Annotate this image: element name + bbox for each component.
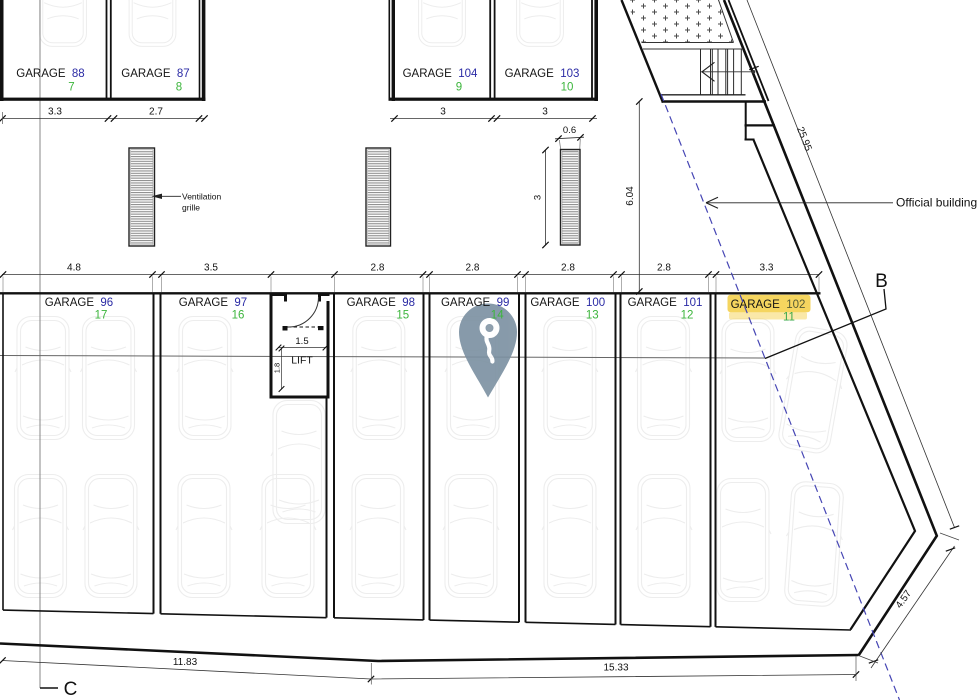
svg-text:1.5: 1.5 bbox=[295, 336, 308, 347]
svg-text:GARAGE 104: GARAGE 104 bbox=[403, 68, 478, 80]
svg-text:8: 8 bbox=[176, 82, 182, 94]
svg-text:11.83: 11.83 bbox=[173, 657, 198, 668]
svg-text:B: B bbox=[875, 271, 888, 292]
svg-text:17: 17 bbox=[95, 310, 108, 322]
svg-text:2.8: 2.8 bbox=[561, 263, 575, 274]
svg-text:C: C bbox=[64, 679, 78, 700]
svg-text:15: 15 bbox=[396, 310, 409, 322]
svg-text:Official building ali: Official building ali bbox=[896, 196, 978, 210]
svg-text:4.8: 4.8 bbox=[67, 263, 81, 274]
svg-text:GARAGE 97: GARAGE 97 bbox=[179, 297, 247, 309]
svg-text:16: 16 bbox=[232, 310, 245, 322]
svg-text:GARAGE 103: GARAGE 103 bbox=[505, 68, 580, 80]
svg-text:12: 12 bbox=[681, 310, 694, 322]
svg-text:13: 13 bbox=[586, 310, 599, 322]
svg-text:6.04: 6.04 bbox=[625, 186, 636, 206]
svg-text:GARAGE 96: GARAGE 96 bbox=[45, 297, 113, 309]
svg-text:2.7: 2.7 bbox=[149, 107, 163, 118]
svg-text:3: 3 bbox=[542, 107, 548, 118]
svg-text:GARAGE 98: GARAGE 98 bbox=[347, 297, 415, 309]
svg-text:Ventilation: Ventilation bbox=[182, 192, 221, 202]
svg-text:GARAGE 87: GARAGE 87 bbox=[121, 68, 189, 80]
svg-text:15.33: 15.33 bbox=[603, 663, 628, 674]
svg-text:14: 14 bbox=[491, 310, 504, 322]
svg-text:GARAGE 99: GARAGE 99 bbox=[441, 297, 509, 309]
svg-text:10: 10 bbox=[561, 82, 574, 94]
svg-text:2.8: 2.8 bbox=[371, 263, 385, 274]
svg-text:11: 11 bbox=[783, 312, 795, 324]
svg-text:3.5: 3.5 bbox=[204, 263, 218, 274]
svg-text:7: 7 bbox=[68, 82, 74, 94]
svg-text:GARAGE 100: GARAGE 100 bbox=[530, 297, 605, 309]
svg-text:1.8: 1.8 bbox=[273, 363, 282, 373]
svg-text:LIFT: LIFT bbox=[291, 355, 313, 367]
svg-text:9: 9 bbox=[456, 82, 462, 94]
svg-text:2.8: 2.8 bbox=[657, 263, 671, 274]
svg-text:3.3: 3.3 bbox=[760, 263, 774, 274]
svg-text:GARAGE 101: GARAGE 101 bbox=[628, 297, 703, 309]
svg-text:grille: grille bbox=[182, 203, 200, 213]
svg-text:3.3: 3.3 bbox=[48, 107, 62, 118]
svg-text:2.8: 2.8 bbox=[466, 263, 480, 274]
svg-text:0.6: 0.6 bbox=[563, 125, 576, 136]
svg-text:GARAGE 88: GARAGE 88 bbox=[16, 68, 84, 80]
svg-text:3: 3 bbox=[533, 195, 544, 200]
svg-text:3: 3 bbox=[440, 107, 446, 118]
